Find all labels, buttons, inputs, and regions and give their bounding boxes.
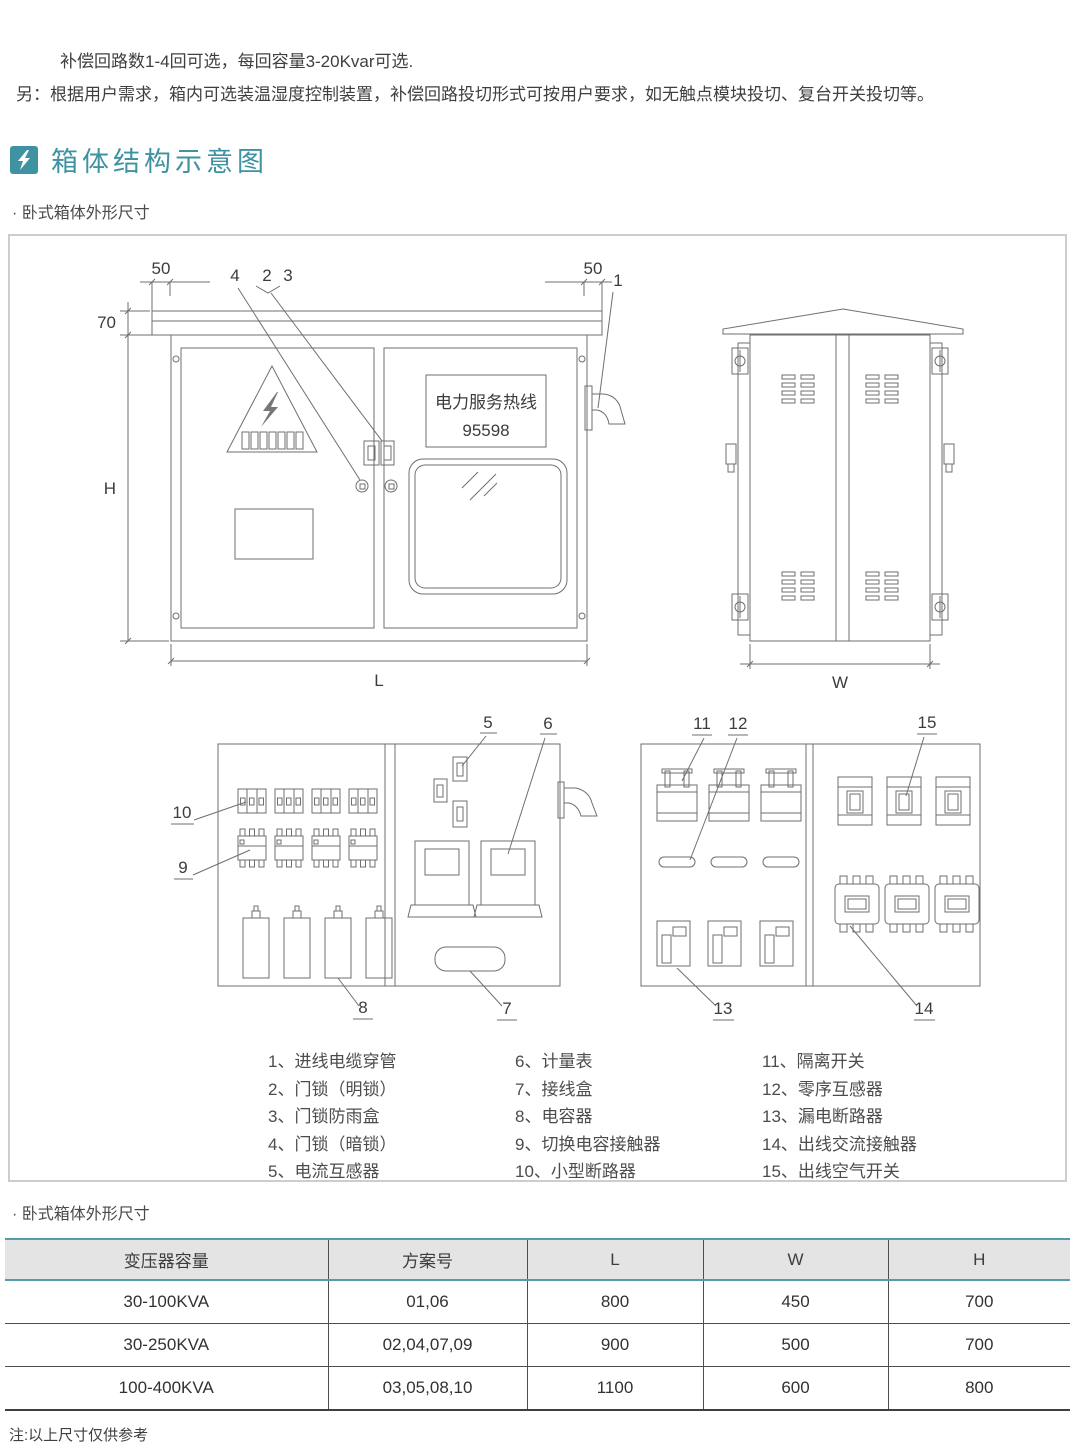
dimension-table: 变压器容量 方案号 L W H 30-100KVA 01,06 800 450 …	[5, 1238, 1070, 1411]
callout-2: 2	[262, 266, 271, 285]
legend-item: 3、门锁防雨盒	[268, 1103, 396, 1131]
front-body	[171, 335, 587, 641]
meter-window	[409, 459, 567, 594]
side-roof	[723, 309, 963, 334]
callout-8: 8	[358, 998, 367, 1017]
section-header: 箱体结构示意图	[10, 140, 1075, 179]
cell-h: 800	[888, 1367, 1070, 1411]
zero-sequence-cts	[659, 857, 799, 867]
intro-paragraph: 补偿回路数1-4回可选，每回容量3-20Kvar可选. 另：根据用户需求，箱内可…	[0, 0, 1075, 107]
callout-12: 12	[729, 714, 748, 733]
capacitor-contactors	[238, 829, 377, 867]
cell-h: 700	[888, 1324, 1070, 1367]
front-roof	[152, 311, 602, 335]
col-header-capacity: 变压器容量	[5, 1239, 328, 1280]
isolating-switches	[657, 769, 801, 821]
table-row: 100-400KVA 03,05,08,10 1100 600 800	[5, 1367, 1070, 1411]
mini-circuit-breakers	[238, 789, 377, 813]
callout-1: 1	[613, 271, 622, 290]
interior-cable-conduit	[558, 782, 597, 818]
service-hotline-sign: 电力服务热线 95598	[426, 375, 546, 447]
interior-view-right: 11 12 15 13 14	[641, 713, 980, 1020]
dim-left-overhang: 50	[152, 259, 171, 278]
front-dimensions: 50 50 70 H L	[97, 259, 612, 690]
legend-item: 11、隔离开关	[762, 1048, 917, 1076]
callout-9: 9	[178, 858, 187, 877]
front-left-door	[181, 348, 374, 628]
cell-w: 450	[703, 1280, 888, 1324]
side-body	[750, 335, 930, 641]
section-title: 箱体结构示意图	[51, 140, 268, 179]
subtitle-dimension-table: · 卧式箱体外形尺寸	[12, 1200, 1075, 1224]
col-header-l: L	[527, 1239, 703, 1280]
legend-item: 6、计量表	[515, 1048, 660, 1076]
callout-6: 6	[543, 714, 552, 733]
legend-item: 5、电流互感器	[268, 1158, 396, 1186]
side-latches	[726, 444, 954, 472]
legend-item: 13、漏电断路器	[762, 1103, 917, 1131]
col-header-h: H	[888, 1239, 1070, 1280]
current-transformers	[434, 757, 467, 827]
callout-11: 11	[693, 714, 711, 733]
col-header-w: W	[703, 1239, 888, 1280]
intro-line-2: 另：根据用户需求，箱内可选装温湿度控制装置，补偿回路投切形式可按用户要求，如无触…	[16, 83, 1075, 107]
side-dimensions: W	[740, 644, 940, 692]
table-header-row: 变压器容量 方案号 L W H	[5, 1239, 1070, 1280]
capacitors	[243, 906, 392, 978]
callout-7: 7	[502, 999, 511, 1018]
front-view: 电力服务热线 95598	[97, 259, 625, 690]
col-header-scheme: 方案号	[328, 1239, 527, 1280]
warning-triangle	[227, 366, 317, 452]
side-view: W	[723, 309, 963, 692]
interior-view-left: 5 6 10 9 8 7	[171, 713, 597, 1020]
cell-h: 700	[888, 1280, 1070, 1324]
cell-l: 800	[527, 1280, 703, 1324]
legend-item: 9、切换电容接触器	[515, 1131, 660, 1159]
leakage-breakers	[657, 921, 793, 966]
sign-line-1: 电力服务热线	[435, 393, 537, 412]
legend-item: 10、小型断路器	[515, 1158, 660, 1186]
cell-capacity: 30-250KVA	[5, 1324, 328, 1367]
cell-l: 1100	[527, 1367, 703, 1411]
legend-item: 2、门锁（明锁）	[268, 1076, 396, 1104]
callout-15: 15	[918, 713, 937, 732]
catalog-page: 补偿回路数1-4回可选，每回容量3-20Kvar可选. 另：根据用户需求，箱内可…	[0, 0, 1075, 1445]
cell-capacity: 30-100KVA	[5, 1280, 328, 1324]
junction-box	[435, 947, 505, 971]
cable-conduit	[585, 386, 625, 430]
structure-diagram: 电力服务热线 95598	[10, 236, 1065, 1046]
cell-capacity: 100-400KVA	[5, 1367, 328, 1411]
dim-length: L	[374, 671, 383, 690]
legend-column-1: 1、进线电缆穿管 2、门锁（明锁） 3、门锁防雨盒 4、门锁（暗锁） 5、电流互…	[268, 1048, 396, 1186]
callout-4: 4	[230, 266, 239, 285]
cell-w: 500	[703, 1324, 888, 1367]
energy-meters	[408, 841, 542, 917]
warning-bolt-icon	[261, 392, 278, 427]
front-callouts: 4 2 3 1	[230, 266, 622, 480]
subtitle-outline-dimensions: · 卧式箱体外形尺寸	[12, 199, 1075, 223]
ventilation-louvers	[782, 375, 898, 600]
legend-item: 8、电容器	[515, 1103, 660, 1131]
footnote: 注:以上尺寸仅供参考	[9, 1424, 1075, 1445]
callout-13: 13	[714, 999, 733, 1018]
cell-l: 900	[527, 1324, 703, 1367]
cell-w: 600	[703, 1367, 888, 1411]
dim-width: W	[832, 673, 848, 692]
legend-item: 15、出线空气开关	[762, 1158, 917, 1186]
legend-item: 1、进线电缆穿管	[268, 1048, 396, 1076]
intro-line-1: 补偿回路数1-4回可选，每回容量3-20Kvar可选.	[60, 50, 1075, 74]
dim-height: H	[104, 479, 116, 498]
callout-5: 5	[483, 713, 492, 732]
legend-column-3: 11、隔离开关 12、零序互感器 13、漏电断路器 14、出线交流接触器 15、…	[762, 1048, 917, 1186]
callout-14: 14	[915, 999, 934, 1018]
dim-roof-thickness: 70	[97, 313, 116, 332]
name-plate	[235, 509, 313, 559]
outgoing-air-switches	[838, 777, 970, 825]
callout-3: 3	[283, 266, 292, 285]
cell-scheme: 02,04,07,09	[328, 1324, 527, 1367]
sign-line-2: 95598	[462, 421, 509, 440]
cell-scheme: 03,05,08,10	[328, 1367, 527, 1411]
structure-diagram-frame: 电力服务热线 95598	[8, 234, 1067, 1182]
cell-scheme: 01,06	[328, 1280, 527, 1324]
lightning-icon	[10, 146, 38, 174]
legend-item: 4、门锁（暗锁）	[268, 1131, 396, 1159]
legend-column-2: 6、计量表 7、接线盒 8、电容器 9、切换电容接触器 10、小型断路器	[515, 1048, 660, 1186]
legend-item: 14、出线交流接触器	[762, 1131, 917, 1159]
dim-right-overhang: 50	[584, 259, 603, 278]
legend-item: 7、接线盒	[515, 1076, 660, 1104]
table-row: 30-250KVA 02,04,07,09 900 500 700	[5, 1324, 1070, 1367]
table-row: 30-100KVA 01,06 800 450 700	[5, 1280, 1070, 1324]
callout-10: 10	[173, 803, 192, 822]
front-right-door	[384, 348, 577, 628]
outgoing-ac-contactors	[835, 876, 979, 932]
door-locks	[356, 441, 397, 492]
legend-item: 12、零序互感器	[762, 1076, 917, 1104]
